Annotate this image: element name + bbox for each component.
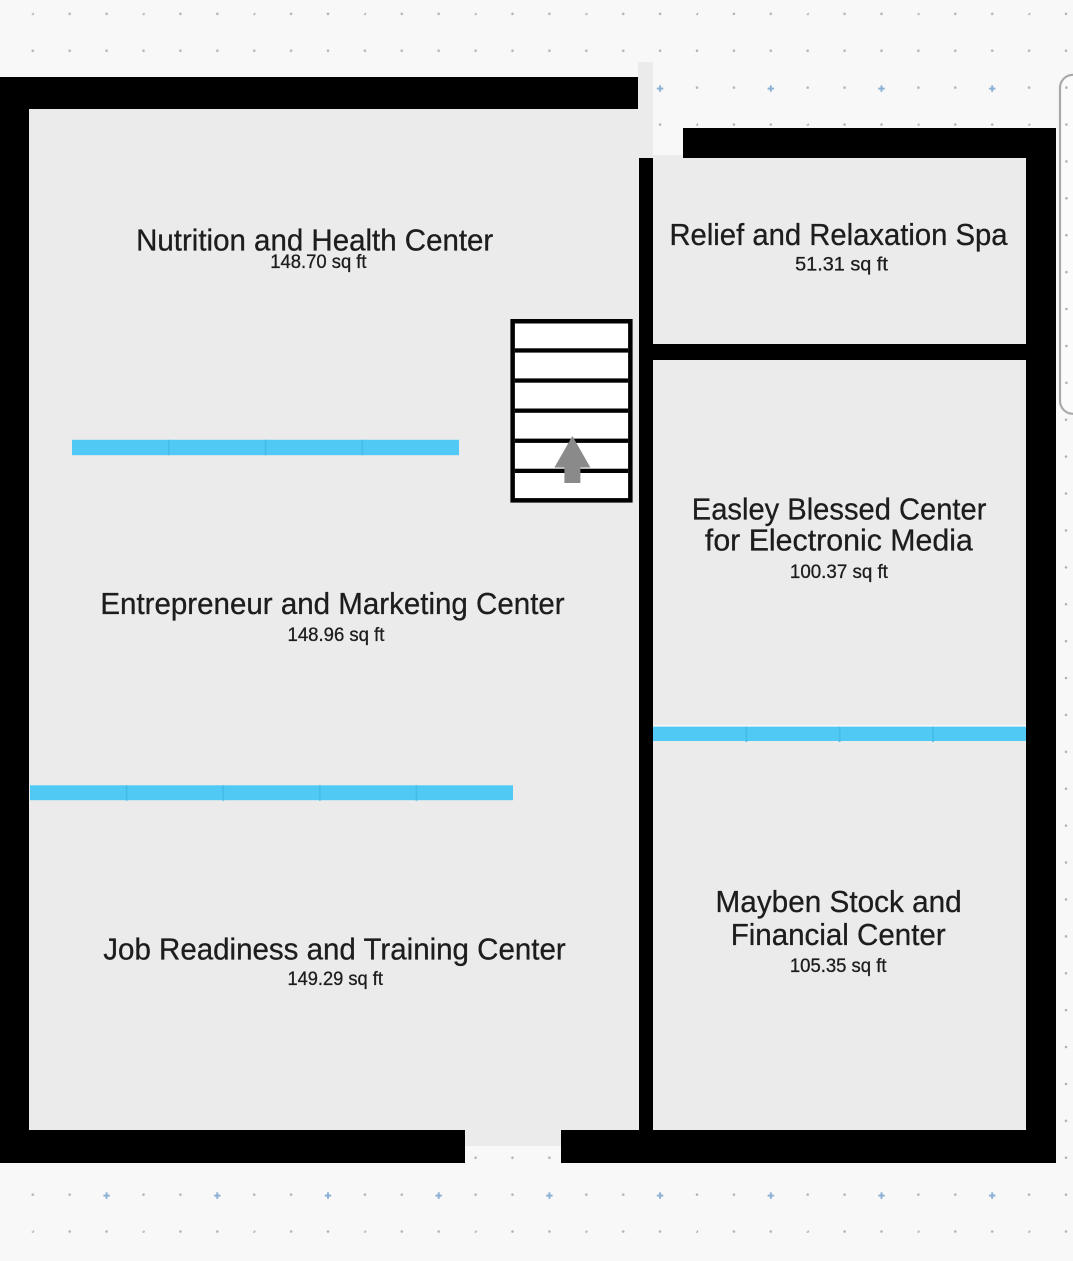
svg-text:100.37 sq ft: 100.37 sq ft bbox=[790, 562, 889, 583]
svg-text:Job Readiness and Training Cen: Job Readiness and Training Center bbox=[103, 933, 565, 967]
svg-text:Easley Blessed Center: Easley Blessed Center bbox=[692, 493, 987, 527]
svg-text:Entrepreneur and Marketing Cen: Entrepreneur and Marketing Center bbox=[100, 587, 564, 621]
svg-text:148.96 sq ft: 148.96 sq ft bbox=[288, 625, 386, 646]
svg-text:51.31 sq ft: 51.31 sq ft bbox=[795, 254, 888, 275]
svg-text:148.70 sq ft: 148.70 sq ft bbox=[270, 252, 367, 273]
svg-text:Financial Center: Financial Center bbox=[731, 918, 946, 952]
svg-text:Mayben Stock and: Mayben Stock and bbox=[716, 885, 962, 919]
svg-text:for Electronic Media: for Electronic Media bbox=[705, 524, 974, 558]
svg-text:105.35 sq ft: 105.35 sq ft bbox=[790, 956, 887, 977]
svg-text:149.29 sq ft: 149.29 sq ft bbox=[287, 969, 383, 990]
svg-text:Relief and Relaxation Spa: Relief and Relaxation Spa bbox=[669, 218, 1008, 252]
